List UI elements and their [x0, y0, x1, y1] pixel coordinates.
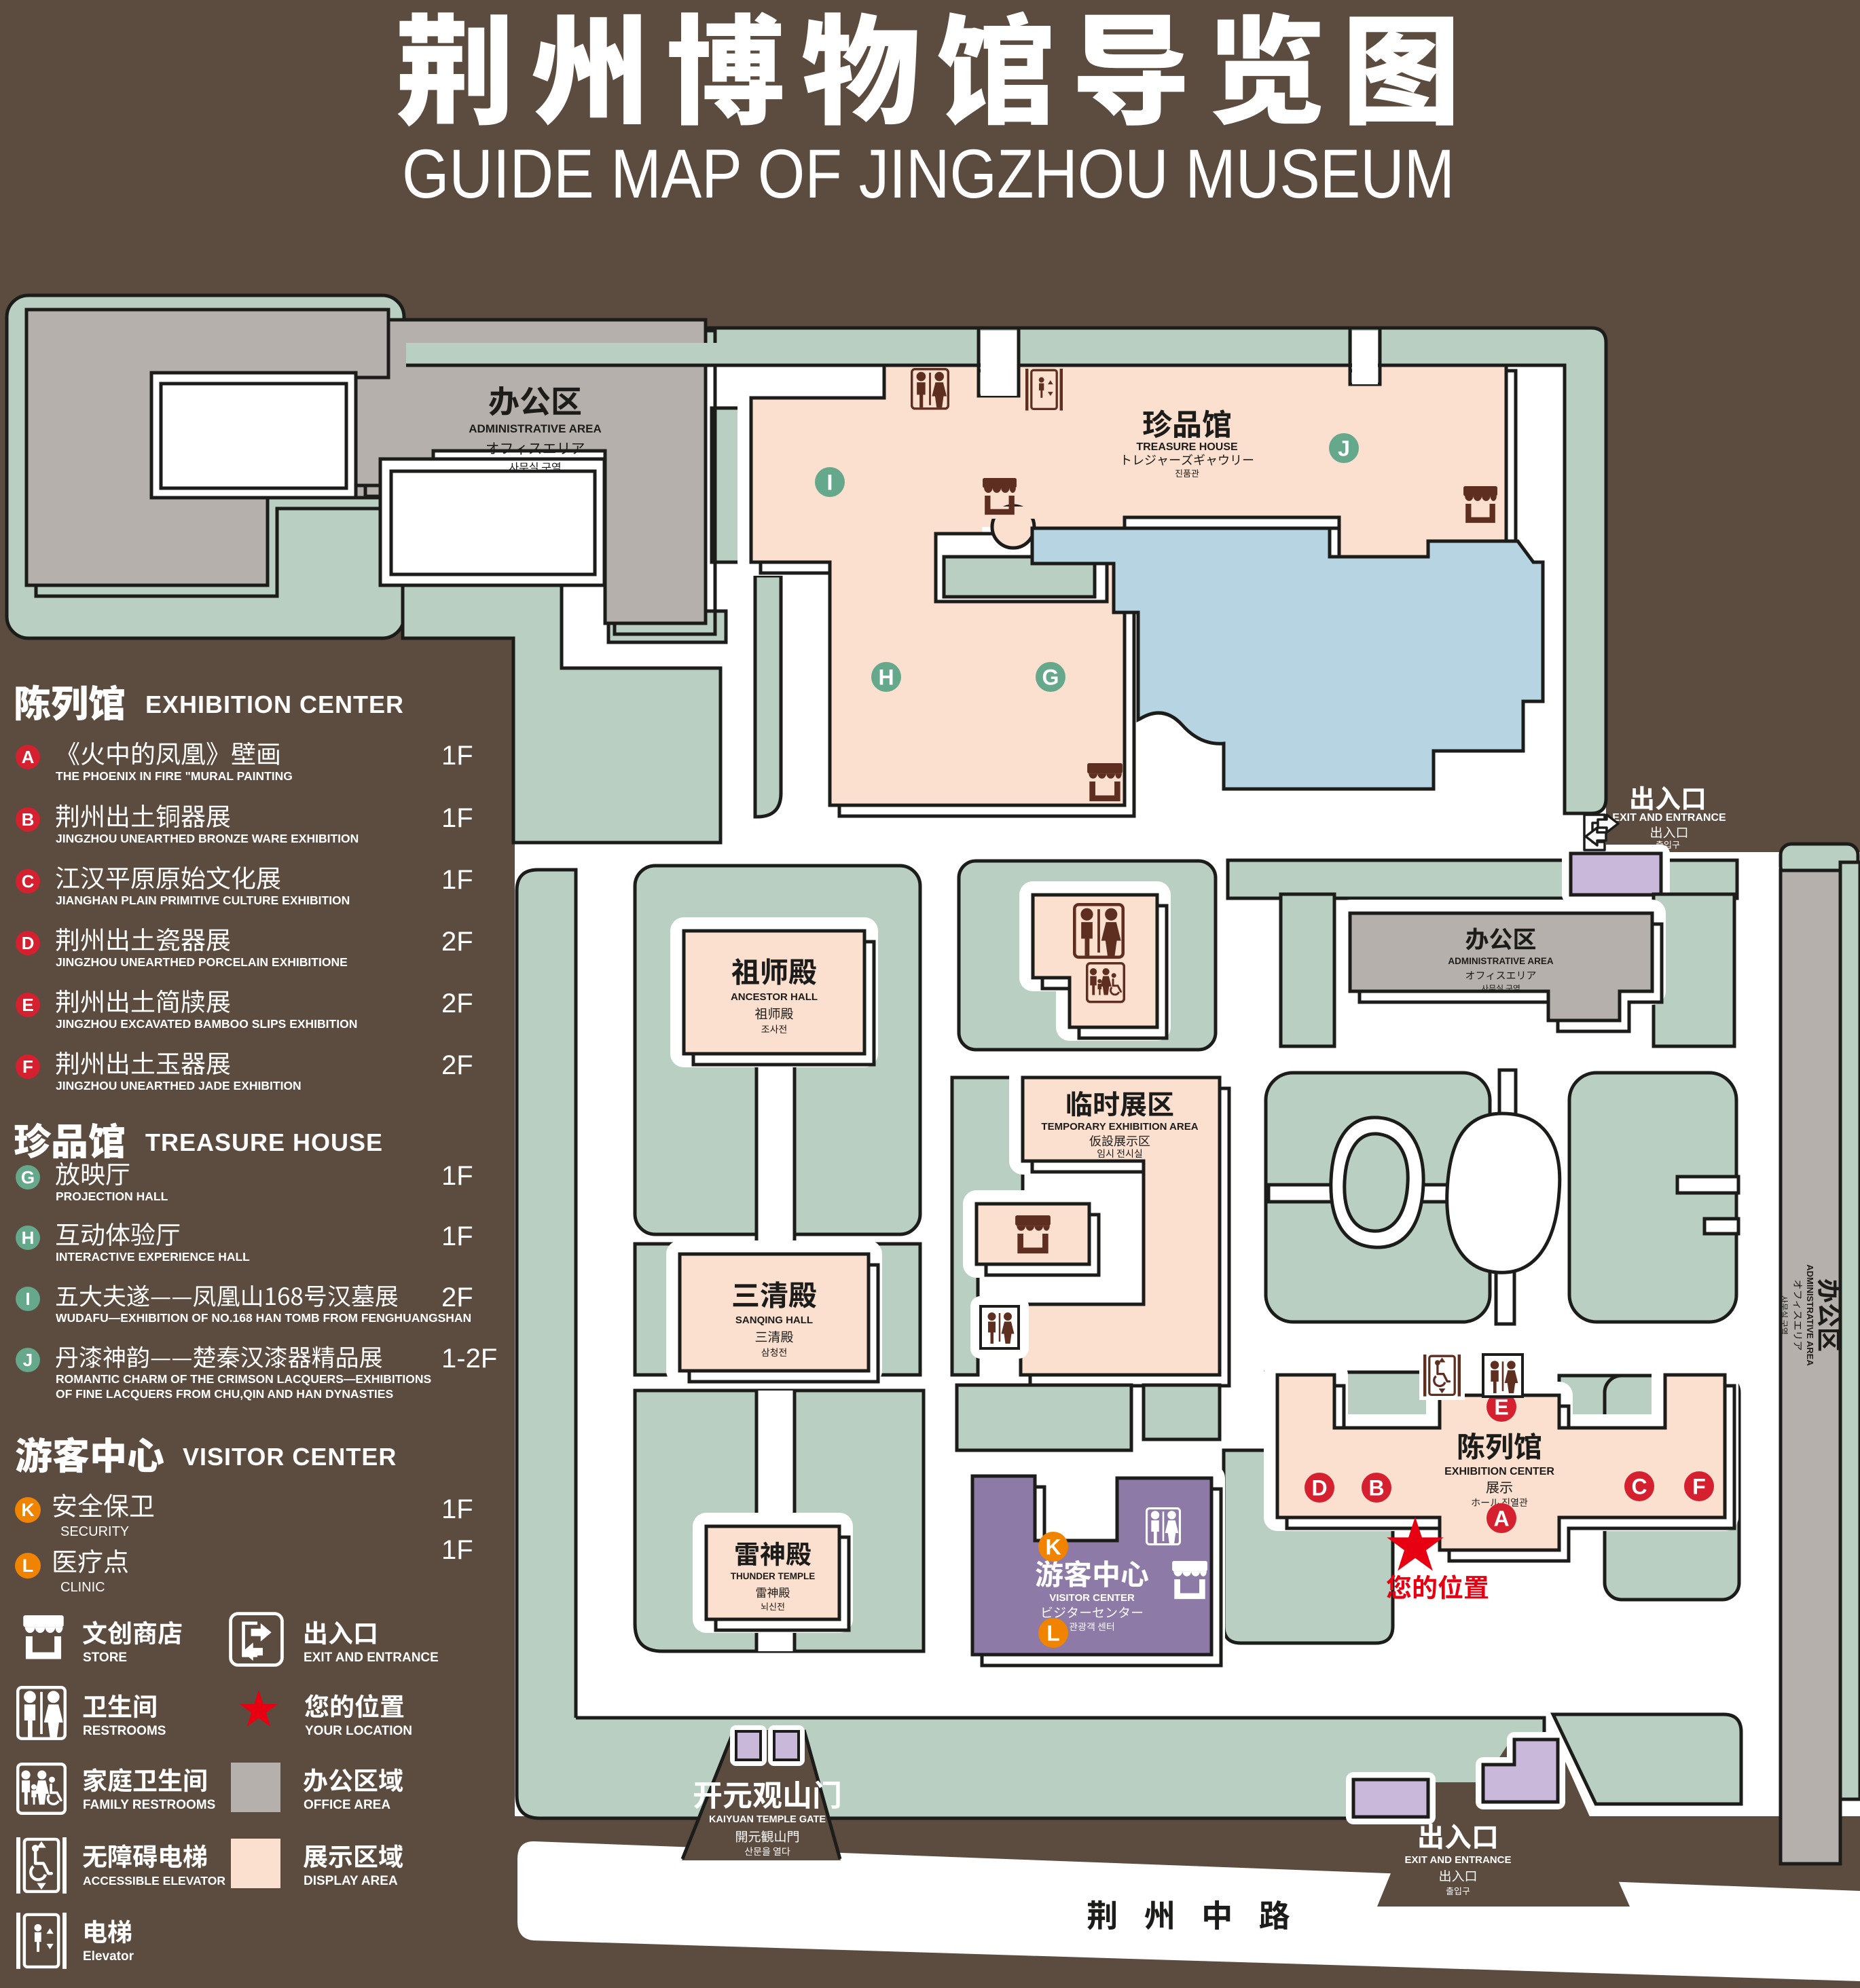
- svg-text:TEMPORARY EXHIBITION AREA: TEMPORARY EXHIBITION AREA: [1041, 1121, 1198, 1133]
- svg-text:F: F: [1692, 1474, 1706, 1498]
- svg-text:OFFICE AREA: OFFICE AREA: [304, 1798, 390, 1812]
- svg-text:C: C: [1631, 1474, 1647, 1498]
- svg-text:ADMINISTRATIVE AREA: ADMINISTRATIVE AREA: [469, 422, 602, 435]
- svg-text:1F: 1F: [441, 865, 473, 895]
- svg-text:JINGZHOU UNEARTHED BRONZE WARE: JINGZHOU UNEARTHED BRONZE WARE EXHIBITIO…: [56, 832, 359, 845]
- svg-text:B: B: [22, 809, 35, 830]
- svg-text:2F: 2F: [441, 1283, 473, 1312]
- svg-text:L: L: [1046, 1621, 1060, 1645]
- svg-text:J: J: [23, 1350, 33, 1370]
- svg-text:ACCESSIBLE ELEVATOR: ACCESSIBLE ELEVATOR: [83, 1874, 225, 1888]
- svg-text:I: I: [827, 470, 833, 494]
- svg-text:VISITOR CENTER: VISITOR CENTER: [183, 1443, 397, 1471]
- svg-text:E: E: [1494, 1395, 1508, 1419]
- svg-text:EXIT AND ENTRANCE: EXIT AND ENTRANCE: [1612, 812, 1726, 824]
- svg-text:WUDAFU—EXHIBITION OF NO.168 HA: WUDAFU—EXHIBITION OF NO.168 HAN TOMB FRO…: [56, 1311, 471, 1325]
- svg-text:A: A: [22, 747, 35, 767]
- svg-text:1F: 1F: [441, 1494, 473, 1524]
- svg-text:SECURITY: SECURITY: [60, 1524, 129, 1539]
- svg-text:YOUR LOCATION: YOUR LOCATION: [305, 1724, 412, 1738]
- svg-text:TREASURE HOUSE: TREASURE HOUSE: [145, 1128, 383, 1156]
- svg-text:1F: 1F: [441, 741, 473, 771]
- svg-text:RESTROOMS: RESTROOMS: [83, 1724, 166, 1738]
- svg-text:A: A: [1493, 1506, 1509, 1530]
- svg-text:1F: 1F: [441, 803, 473, 833]
- svg-text:JINGZHOU UNEARTHED PORCELAIN E: JINGZHOU UNEARTHED PORCELAIN EXHIBITIONE: [56, 955, 348, 969]
- svg-text:EXIT AND ENTRANCE: EXIT AND ENTRANCE: [1405, 1854, 1512, 1866]
- svg-text:D: D: [1311, 1475, 1327, 1500]
- svg-text:TREASURE HOUSE: TREASURE HOUSE: [1136, 441, 1238, 453]
- svg-text:DISPLAY AREA: DISPLAY AREA: [304, 1874, 398, 1888]
- svg-text:H: H: [22, 1228, 35, 1248]
- svg-text:KAIYUAN TEMPLE GATE: KAIYUAN TEMPLE GATE: [709, 1814, 826, 1825]
- svg-text:J: J: [1338, 436, 1350, 460]
- svg-text:F: F: [22, 1056, 33, 1077]
- svg-text:2F: 2F: [441, 989, 473, 1018]
- svg-text:1F: 1F: [441, 1161, 473, 1191]
- svg-text:THE PHOENIX IN FIRE "MURAL PAI: THE PHOENIX IN FIRE "MURAL PAINTING: [56, 769, 293, 783]
- svg-text:EXHIBITION CENTER: EXHIBITION CENTER: [1444, 1466, 1554, 1477]
- svg-text:2F: 2F: [441, 1050, 473, 1080]
- svg-text:GUIDE MAP OF JINGZHOU MUSEUM: GUIDE MAP OF JINGZHOU MUSEUM: [402, 135, 1455, 213]
- svg-text:1F: 1F: [441, 1221, 473, 1251]
- svg-text:CLINIC: CLINIC: [60, 1580, 105, 1595]
- svg-text:JINGZHOU UNEARTHED JADE EXHIBI: JINGZHOU UNEARTHED JADE EXHIBITION: [56, 1079, 302, 1092]
- svg-text:E: E: [22, 995, 33, 1015]
- svg-text:OF FINE LACQUERS FROM CHU,QIN: OF FINE LACQUERS FROM CHU,QIN AND HAN DY…: [56, 1387, 393, 1401]
- svg-text:Elevator: Elevator: [83, 1949, 134, 1964]
- svg-text:EXHIBITION CENTER: EXHIBITION CENTER: [145, 691, 404, 718]
- svg-text:C: C: [22, 871, 35, 891]
- svg-text:PROJECTION HALL: PROJECTION HALL: [56, 1190, 168, 1203]
- svg-text:1F: 1F: [441, 1535, 473, 1565]
- svg-text:L: L: [22, 1556, 34, 1576]
- svg-text:FAMILY RESTROOMS: FAMILY RESTROOMS: [83, 1798, 215, 1812]
- svg-text:D: D: [22, 933, 35, 953]
- svg-text:INTERACTIVE EXPERIENCE HALL: INTERACTIVE EXPERIENCE HALL: [56, 1250, 250, 1264]
- svg-text:ANCESTOR HALL: ANCESTOR HALL: [731, 991, 818, 1003]
- svg-text:K: K: [1045, 1534, 1061, 1559]
- svg-text:JIANGHAN PLAIN PRIMITIVE CULTU: JIANGHAN PLAIN PRIMITIVE CULTURE EXHIBIT…: [56, 894, 350, 907]
- svg-text:I: I: [25, 1289, 30, 1309]
- svg-text:K: K: [21, 1500, 35, 1520]
- svg-text:STORE: STORE: [83, 1651, 127, 1665]
- svg-text:ADMINISTRATIVE AREA: ADMINISTRATIVE AREA: [1805, 1264, 1815, 1366]
- svg-text:ADMINISTRATIVE AREA: ADMINISTRATIVE AREA: [1448, 956, 1554, 966]
- svg-text:JINGZHOU EXCAVATED BAMBOO SLIP: JINGZHOU EXCAVATED BAMBOO SLIPS EXHIBITI…: [56, 1017, 357, 1031]
- svg-text:H: H: [878, 665, 894, 689]
- svg-text:G: G: [1042, 665, 1059, 689]
- svg-text:B: B: [1368, 1475, 1384, 1500]
- svg-text:1-2F: 1-2F: [441, 1344, 497, 1374]
- svg-text:2F: 2F: [441, 927, 473, 957]
- svg-text:THUNDER TEMPLE: THUNDER TEMPLE: [731, 1571, 816, 1581]
- svg-text:ROMANTIC CHARM OF THE CRIMSON: ROMANTIC CHARM OF THE CRIMSON LACQUERS—E…: [56, 1372, 431, 1386]
- svg-text:VISITOR CENTER: VISITOR CENTER: [1049, 1592, 1135, 1604]
- svg-text:EXIT AND ENTRANCE: EXIT AND ENTRANCE: [304, 1651, 439, 1665]
- svg-text:SANQING HALL: SANQING HALL: [735, 1314, 813, 1326]
- svg-text:G: G: [21, 1167, 35, 1188]
